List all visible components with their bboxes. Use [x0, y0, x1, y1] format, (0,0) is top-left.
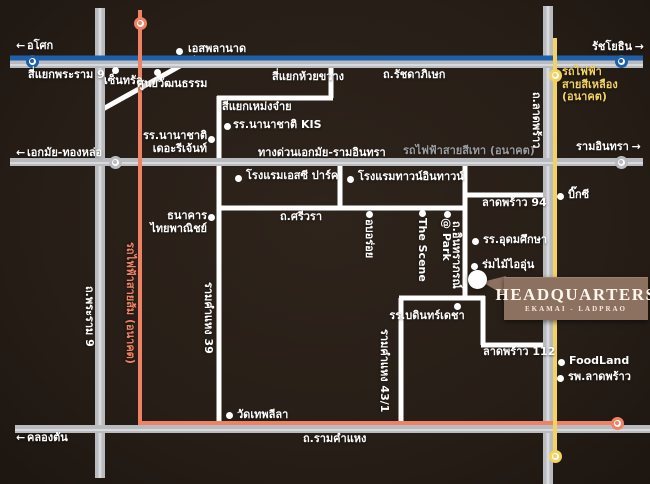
label-ladprao-112: ลาดพร้าว 112 [483, 346, 555, 359]
label-orange-line-text: รถไฟฟ้าสายส้ม (อนาคต) [124, 242, 137, 364]
label-wat-thep-leela-text: วัดเทพลีลา [237, 408, 288, 421]
dot-regent [208, 136, 215, 143]
label-orange-line: รถไฟฟ้าสายส้ม (อนาคต) [123, 242, 136, 364]
dot-big-c [557, 193, 564, 200]
label-grey-line-text: รถไฟฟ้าสายสีเทา (อนาคต) [403, 144, 535, 157]
label-ram-43-1-text: รามคำแหง 43/1 [378, 329, 391, 412]
label-ladprao-94: ลาดพร้าว 94 [482, 197, 547, 210]
label-scb: ธนาคาร ไทยพาณิชย์ [143, 210, 207, 235]
label-expressway: ทางด่วนเอกมัย-รามอินทรา [258, 147, 386, 160]
label-ekamai-thonglor-arrow-left-icon: ← [16, 146, 27, 159]
label-kis-text: รร.นานาชาติ KIS [233, 118, 322, 131]
dot-esplanade [176, 48, 183, 55]
label-ram-inthra-arrow-right-icon: → [629, 140, 640, 153]
terminal-blue-asok-core [30, 59, 34, 63]
terminal-orange-top [134, 17, 147, 30]
terminal-yellow-top-core [553, 73, 557, 77]
terminal-gray-raminthra [615, 156, 628, 169]
label-ratchadaphisek-rd: ถ.รัชดาภิเษก [383, 69, 445, 82]
terminal-orange-east [611, 417, 624, 430]
label-esplanade-text: เอสพลานาด [188, 42, 246, 55]
label-ramkhamhaeng-rd: ถ.รามคำแหง [303, 433, 366, 446]
dot-town-in-town [347, 176, 354, 183]
label-ekamai-thonglor-text: เอกมัย-ทองหล่อ [27, 146, 102, 159]
label-meng-jai: สี่แยกเหม่งจ๋าย [222, 101, 292, 114]
dot-ladprao-hospital [557, 375, 564, 382]
label-town-in-town-text: โรงแรมทาวน์อินทาวน์ [358, 170, 464, 183]
label-ladprao-112-text: ลาดพร้าว 112 [483, 345, 555, 358]
dot-ob-aroi [366, 211, 373, 218]
label-the-scene: The Scene [415, 218, 428, 282]
label-town-in-town: โรงแรมทาวน์อินทาวน์ [358, 171, 464, 184]
label-yellow-line: รถไฟฟ้า สายสีเหลือง (อนาคต) [562, 66, 618, 104]
label-ram-inthra-text: รามอินทรา [576, 140, 629, 153]
dot-foodland [558, 359, 565, 366]
label-ram-inthra: รามอินทรา → [576, 141, 640, 154]
label-ratchadaphisek-rd-text: ถ.รัชดาภิเษก [383, 68, 445, 81]
label-khlong-tan-arrow-left-icon: ← [16, 431, 27, 444]
dot-udomsuksa [472, 238, 479, 245]
hq-subtitle: EKAMAI - LADPRAO [525, 306, 627, 313]
label-ratchayothin: รัชโยธิน → [592, 41, 643, 54]
label-sc-park-text: โรงแรมเอสซี ปาร์ค [246, 169, 338, 182]
label-ratchayothin-text: รัชโยธิน [592, 40, 632, 53]
terminal-yellow-top [549, 69, 562, 82]
label-ob-aroi-text: อบอร่อย [363, 219, 376, 258]
label-rama9-rd-text: ถ.พระราม 9 [83, 286, 96, 347]
label-inthraphorn-rd-text: ถ.อินทราภรณ์ [450, 221, 463, 289]
terminal-yellow-bottom-core [553, 454, 557, 458]
label-ladprao-94-text: ลาดพร้าว 94 [482, 196, 547, 209]
hq-title: HEADQUARTERS [496, 286, 650, 303]
label-bodindecha-text: รร.บดินทร์เดชา [389, 309, 464, 322]
label-ratchayothin-arrow-right-icon: → [632, 40, 643, 53]
label-khlong-tan: ← คลองตัน [16, 432, 68, 445]
dot-rom-mai-ai-un [471, 263, 478, 270]
label-sriwara-rd: ถ.ศรีวรา [280, 211, 322, 224]
terminal-blue-ratchayothin-core [619, 59, 623, 63]
label-ram-39-text: รามคำแหง 39 [202, 282, 215, 354]
label-rama9-junction-text: สี่แยกพระราม 9 [28, 68, 105, 81]
label-sriwara-rd-text: ถ.ศรีวรา [280, 210, 322, 223]
label-inthraphorn-rd: ถ.อินทราภรณ์ [449, 221, 462, 289]
dot-the-scene [419, 210, 426, 217]
dot-at-park [444, 211, 451, 218]
label-regent-text: รร.นานาชาติ เดอะรีเจ้นท์ [143, 129, 207, 155]
label-huai-khwang-text: สี่แยกห้วยขวาง [272, 70, 344, 83]
dot-wat-thep-leela [226, 412, 233, 419]
label-wat-thep-leela: วัดเทพลีลา [237, 409, 288, 422]
terminal-gray-ekamai [109, 156, 122, 169]
label-asok-text: อโศก [27, 39, 53, 52]
label-khlong-tan-text: คลองตัน [27, 431, 68, 444]
label-grey-line: รถไฟฟ้าสายสีเทา (อนาคต) [403, 145, 535, 158]
dot-central [112, 67, 119, 74]
label-culture-centre-text: ศูนย์วัฒนธรรม [137, 77, 207, 90]
label-yellow-line-text: รถไฟฟ้า สายสีเหลือง (อนาคต) [562, 65, 618, 103]
label-udomsuksa: รร.อุดมศึกษา [483, 234, 547, 247]
label-asok-arrow-left-icon: ← [16, 39, 27, 52]
label-ladprao-hospital-text: รพ.ลาดพร้าว [568, 370, 631, 383]
terminal-orange-top-core [138, 21, 142, 25]
label-ram-43-1: รามคำแหง 43/1 [377, 329, 390, 412]
label-big-c-text: บิ๊กซี [568, 188, 589, 201]
label-kis: รร.นานาชาติ KIS [233, 119, 322, 132]
label-bodindecha: รร.บดินทร์เดชา [379, 310, 475, 323]
label-ram-39: รามคำแหง 39 [201, 282, 214, 354]
terminal-orange-east-core [615, 421, 619, 425]
label-huai-khwang: สี่แยกห้วยขวาง [272, 71, 344, 84]
label-rama9-rd: ถ.พระราม 9 [82, 286, 95, 347]
label-meng-jai-text: สี่แยกเหม่งจ๋าย [222, 100, 292, 113]
terminal-blue-asok [26, 55, 39, 68]
label-sc-park: โรงแรมเอสซี ปาร์ค [246, 170, 338, 183]
label-culture-centre: ศูนย์วัฒนธรรม [137, 78, 207, 91]
label-rom-mai-ai-un-text: ร่มไม้ไออุ่น [482, 258, 534, 271]
label-rom-mai-ai-un: ร่มไม้ไออุ่น [482, 259, 534, 272]
label-foodland: FoodLand [569, 355, 629, 368]
terminal-gray-raminthra-core [619, 160, 623, 164]
terminal-yellow-bottom [549, 450, 562, 463]
label-esplanade: เอสพลานาด [188, 43, 246, 56]
label-ob-aroi: อบอร่อย [362, 219, 375, 258]
label-rama9-junction: สี่แยกพระราม 9 [28, 69, 105, 82]
label-ladprao-rd-text: ถ.ลาดพร้าว [530, 92, 543, 148]
dot-culture-centre [154, 69, 161, 76]
label-expressway-text: ทางด่วนเอกมัย-รามอินทรา [258, 146, 386, 159]
label-udomsuksa-text: รร.อุดมศึกษา [483, 233, 547, 246]
dot-kis [224, 123, 231, 130]
dot-scb [208, 214, 215, 221]
label-regent: รร.นานาชาติ เดอะรีเจ้นท์ [143, 130, 207, 155]
label-big-c: บิ๊กซี [568, 189, 589, 202]
label-asok: ← อโศก [16, 40, 53, 53]
hq-location-marker [468, 270, 487, 289]
map-canvas: ← อโศกเอสพลานาดรัชโยธิน →สี่แยกพระราม 9เ… [0, 0, 650, 484]
dot-sc-park [235, 175, 242, 182]
label-ramkhamhaeng-rd-text: ถ.รามคำแหง [303, 432, 366, 445]
hq-callout-box: HEADQUARTERS EKAMAI - LADPRAO [504, 277, 648, 320]
label-ekamai-thonglor: ← เอกมัย-ทองหล่อ [16, 147, 102, 160]
terminal-gray-ekamai-core [113, 160, 117, 164]
label-ladprao-hospital: รพ.ลาดพร้าว [568, 371, 631, 384]
label-ladprao-rd: ถ.ลาดพร้าว [529, 92, 542, 148]
label-scb-text: ธนาคาร ไทยพาณิชย์ [150, 209, 207, 235]
label-the-scene-text: The Scene [416, 218, 429, 282]
label-foodland-text: FoodLand [569, 354, 629, 367]
